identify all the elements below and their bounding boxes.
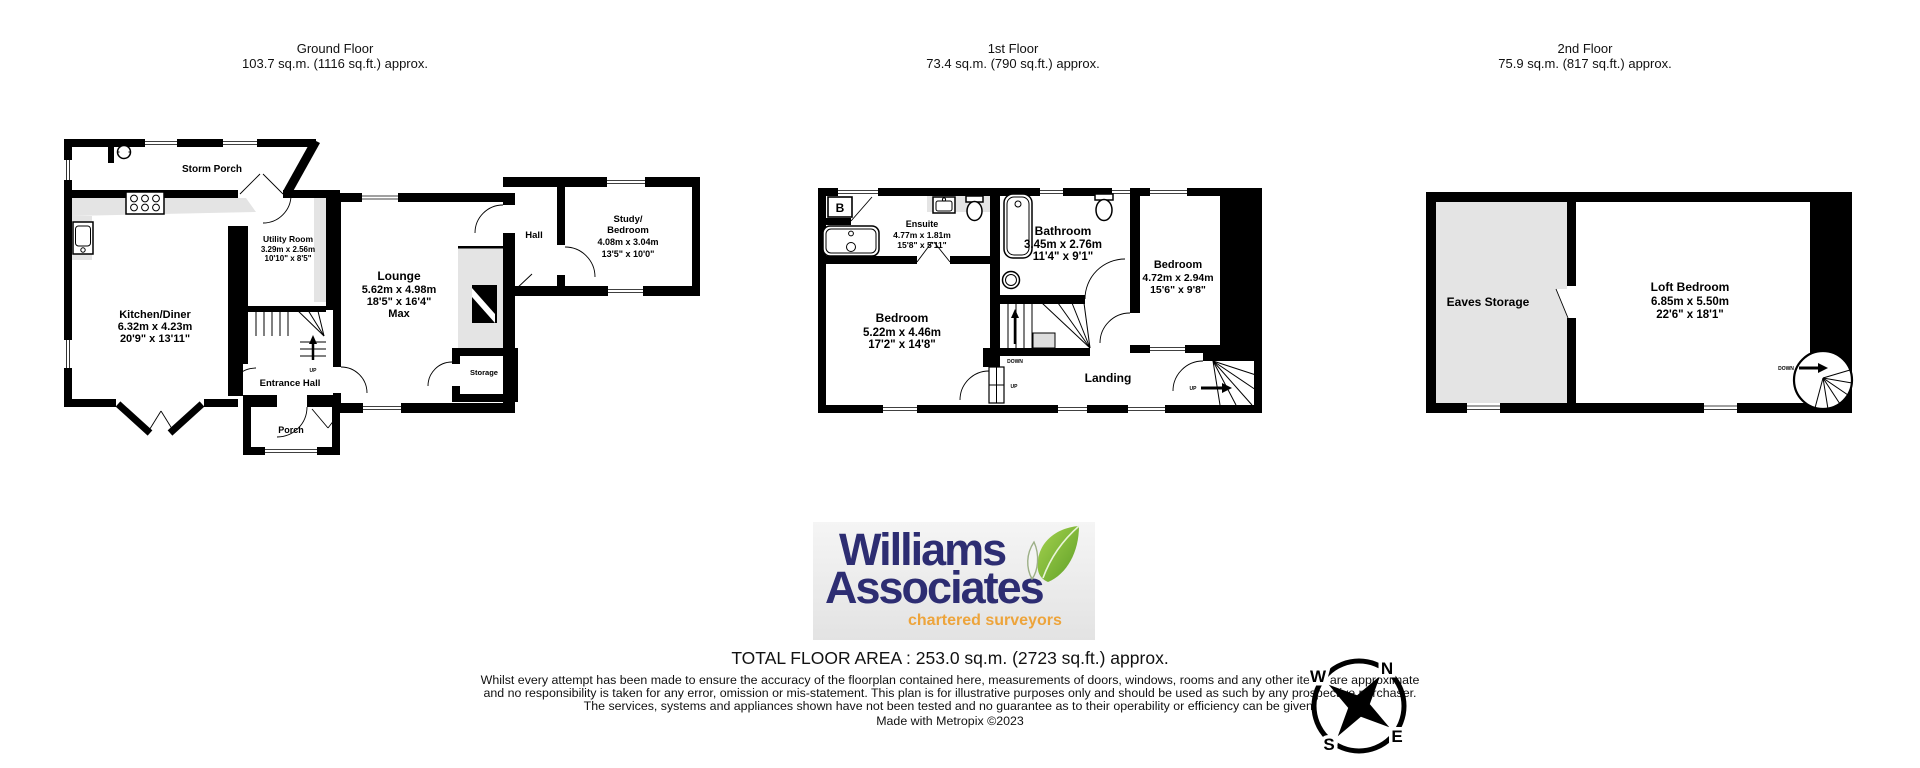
eaves-storage-label: Eaves Storage [1447,295,1530,309]
first-winder-staircase: UP [1190,361,1259,405]
ensuite-label: Ensuite 4.77m x 1.81m 15'8" x 5'11" [893,219,951,250]
bedroom-front-label: Bedroom 5.22m x 4.46m 17'2" x 14'8" [863,311,941,351]
ground-floor-area: 103.7 sq.m. (1116 sq.ft.) approx. [125,57,545,72]
kitchen-sink-icon [73,222,93,254]
svg-text:3.45m x 2.76m: 3.45m x 2.76m [1024,239,1102,251]
svg-text:4.08m x 3.04m: 4.08m x 3.04m [597,237,658,247]
svg-text:11'4" x 9'1": 11'4" x 9'1" [1033,251,1094,263]
svg-text:3.29m x 2.56m: 3.29m x 2.56m [261,245,315,254]
svg-text:17'2" x 14'8": 17'2" x 14'8" [868,339,936,351]
svg-text:15'8" x 5'11": 15'8" x 5'11" [897,240,946,250]
compass-e: E [1391,727,1402,746]
kitchen-label: Kitchen/Diner 6.32m x 4.23m 20'9" x 13'1… [118,309,193,345]
ensuite-bath-icon [823,226,879,256]
landing-label: Landing [1085,371,1132,385]
compass-icon: N W S E [1303,650,1415,762]
first-up-label: UP [1011,384,1019,390]
second-floor-plan: DOWN Eaves Storage Loft Bedroom 6.85m x … [1420,185,1860,420]
down-arrow-icon [1011,309,1019,344]
second-floor-area: 75.9 sq.m. (817 sq.ft.) approx. [1375,57,1795,72]
first-floor-title: 1st Floor [803,42,1223,57]
bathroom-label: Bathroom 3.45m x 2.76m 11'4" x 9'1" [1024,224,1102,263]
leaf-icon [1019,524,1083,584]
floorplan-page: Ground Floor 103.7 sq.m. (1116 sq.ft.) a… [0,0,1920,768]
svg-text:Loft Bedroom: Loft Bedroom [1651,280,1730,294]
svg-text:18'5" x 16'4": 18'5" x 16'4" [367,296,432,308]
svg-text:4.77m x 1.81m: 4.77m x 1.81m [893,230,951,240]
svg-text:20'9" x 13'11": 20'9" x 13'11" [120,333,190,345]
fireplace-icon [472,285,497,323]
svg-text:B: B [836,201,845,215]
svg-text:Bedroom: Bedroom [876,311,929,325]
svg-text:5.62m x 4.98m: 5.62m x 4.98m [362,284,437,296]
svg-text:Study/: Study/ [613,214,642,225]
boiler-icon: B [828,197,852,217]
svg-text:4.72m x 2.94m: 4.72m x 2.94m [1142,272,1213,284]
first-up-label2: UP [1190,386,1198,392]
disclaimer-text: Whilst every attempt has been made to en… [475,674,1425,713]
svg-text:10'10" x 8'5": 10'10" x 8'5" [265,254,312,263]
svg-text:Max: Max [388,308,410,320]
svg-text:13'5" x 10'0": 13'5" x 10'0" [602,249,655,259]
spiral-staircase: DOWN [1778,351,1852,409]
second-down-label: DOWN [1778,366,1794,372]
compass-star [1329,676,1390,737]
second-floor-title: 2nd Floor [1375,42,1795,57]
bedroom-rear-label: Bedroom 4.72m x 2.94m 15'6" x 9'8" [1142,259,1213,296]
study-label: Study/ Bedroom 4.08m x 3.04m 13'5" x 10'… [597,214,658,259]
logo-tagline: chartered surveyors [908,612,1062,630]
svg-text:Bedroom: Bedroom [1154,259,1203,271]
svg-text:Ensuite: Ensuite [906,219,939,229]
svg-text:5.22m x 4.46m: 5.22m x 4.46m [863,327,941,339]
ground-floor-title: Ground Floor [125,42,545,57]
first-walls [818,188,1262,413]
svg-text:Kitchen/Diner: Kitchen/Diner [119,309,191,321]
compass-s: S [1323,735,1334,754]
first-floor-area: 73.4 sq.m. (790 sq.ft.) approx. [803,57,1223,72]
storm-porch-label: Storm Porch [182,164,242,175]
hob-icon [126,192,164,214]
total-floor-area: TOTAL FLOOR AREA : 253.0 sq.m. (2723 sq.… [450,648,1450,669]
svg-text:6.85m x 5.50m: 6.85m x 5.50m [1651,296,1729,308]
svg-text:Utility Room: Utility Room [263,234,313,244]
logo-name-line2: Associates [825,562,1043,614]
entrance-hall-label: Entrance Hall [260,378,321,389]
ground-up-label: UP [310,368,318,374]
svg-text:Lounge: Lounge [377,269,421,283]
ground-floor-plan: UP Storm Porch K [60,130,710,462]
agency-logo: Williams Associates chartered surveyors [813,522,1095,640]
storage-label: Storage [470,368,498,377]
bathroom-sink-icon [1003,272,1020,289]
svg-text:Bathroom: Bathroom [1035,224,1092,238]
svg-text:Bedroom: Bedroom [607,225,649,236]
bathroom-toilet-icon [1095,194,1113,221]
first-step-up: UP [989,367,1018,403]
compass-w: W [1310,667,1327,686]
ground-staircase: UP [256,307,326,374]
hall-label: Hall [525,230,542,241]
first-down-label: DOWN [1007,359,1023,365]
ground-floor-header: Ground Floor 103.7 sq.m. (1116 sq.ft.) a… [125,42,545,71]
credit-text: Made with Metropix ©2023 [475,715,1425,728]
porch-label: Porch [278,425,304,435]
first-floor-header: 1st Floor 73.4 sq.m. (790 sq.ft.) approx… [803,42,1223,71]
first-floor-plan: DOWN UP UP B [815,180,1265,417]
ensuite-sink-icon [933,197,955,213]
utility-shading [314,198,328,302]
compass-n: N [1381,659,1393,678]
svg-text:6.32m x 4.23m: 6.32m x 4.23m [118,321,193,333]
second-floor-header: 2nd Floor 75.9 sq.m. (817 sq.ft.) approx… [1375,42,1795,71]
disclaimer-block: Whilst every attempt has been made to en… [475,674,1425,728]
ensuite-toilet-icon [966,196,983,221]
svg-text:22'6" x 18'1": 22'6" x 18'1" [1656,309,1724,321]
loft-bedroom-label: Loft Bedroom 6.85m x 5.50m 22'6" x 18'1" [1651,280,1730,321]
utility-label: Utility Room 3.29m x 2.56m 10'10" x 8'5" [261,234,315,263]
lounge-label: Lounge 5.62m x 4.98m 18'5" x 16'4" Max [362,269,437,320]
svg-text:15'6" x 9'8": 15'6" x 9'8" [1150,284,1206,296]
